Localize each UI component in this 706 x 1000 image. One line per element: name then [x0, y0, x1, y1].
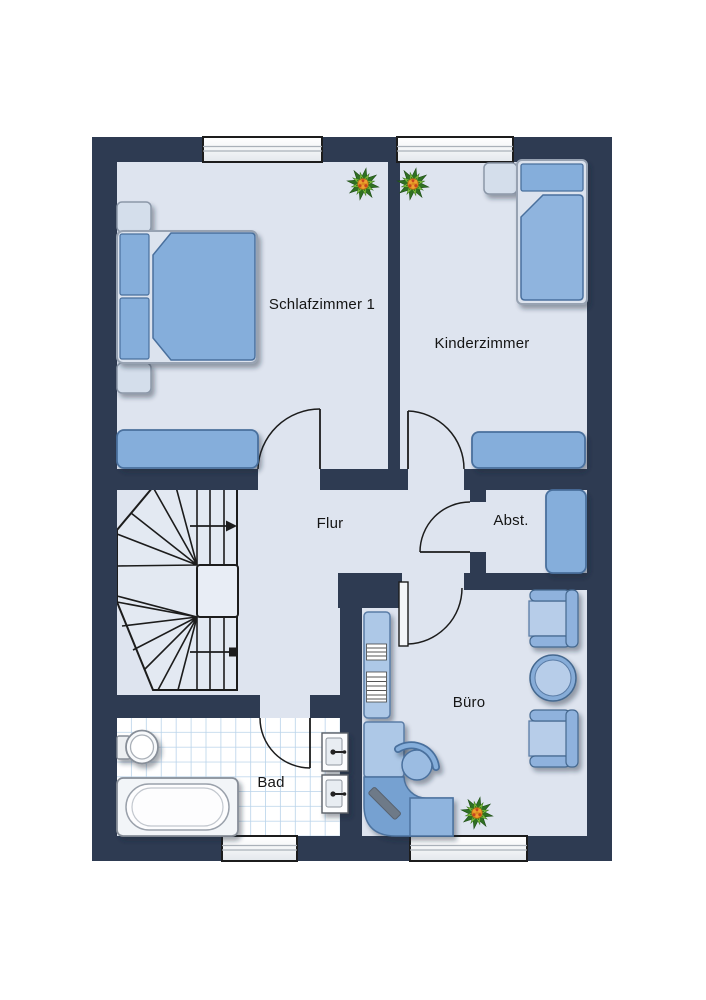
- wall-outer-left: [92, 137, 117, 861]
- wall-abst-south: [464, 573, 587, 590]
- wall-flur-north-a: [117, 469, 258, 490]
- pillow: [120, 298, 149, 359]
- wall-flur-north-c: [464, 469, 587, 490]
- double-bed: [117, 231, 257, 363]
- window-schlafzimmer: [203, 137, 322, 162]
- nightstand: [484, 163, 517, 194]
- pillow: [521, 164, 583, 191]
- bench: [472, 432, 585, 468]
- blanket: [153, 233, 255, 360]
- pillow: [120, 234, 149, 295]
- room-label-flur: Flur: [317, 515, 344, 532]
- window-kinderzimmer: [397, 137, 513, 162]
- desk: [410, 798, 453, 836]
- wall-flur-north-b: [320, 469, 408, 490]
- wall-bad-north-a: [117, 695, 260, 718]
- nightstand: [117, 202, 151, 232]
- floor-plan-page: Schlafzimmer 1 Kinderzimmer Flur Abst. B…: [0, 0, 706, 1000]
- room-label-schlafzimmer: Schlafzimmer 1: [269, 296, 375, 313]
- bathtub: [117, 778, 238, 836]
- wall-bedroom-divider: [388, 162, 400, 469]
- wall-outer-bottom: [92, 836, 612, 861]
- bench: [117, 430, 258, 468]
- blanket: [521, 195, 583, 300]
- room-label-bad: Bad: [257, 774, 284, 791]
- room-label-abstellraum: Abst.: [493, 512, 528, 529]
- wall-buero-north: [338, 573, 402, 608]
- room-label-buero: Büro: [453, 694, 486, 711]
- room-label-kinderzimmer: Kinderzimmer: [435, 335, 530, 352]
- nightstand: [117, 363, 151, 393]
- floor-plan: Schlafzimmer 1 Kinderzimmer Flur Abst. B…: [0, 0, 706, 1000]
- single-bed: [517, 160, 587, 304]
- wall-bad-north-b: [310, 695, 340, 718]
- wall-abst-west-jamb-top: [470, 490, 486, 502]
- armchair: [529, 710, 578, 767]
- round-table: [530, 655, 576, 701]
- wall-abst-west-jamb-bottom: [470, 552, 486, 573]
- sink: [322, 733, 348, 771]
- sink: [322, 775, 348, 813]
- armchair: [529, 590, 578, 647]
- window-bad: [222, 836, 297, 861]
- bookshelf: [364, 612, 390, 718]
- stair-start-marker: [229, 648, 238, 657]
- toilet: [117, 731, 158, 764]
- window-buero: [410, 836, 527, 861]
- storage-cabinet: [546, 490, 586, 573]
- wall-outer-top: [92, 137, 612, 162]
- wall-outer-right: [587, 137, 612, 861]
